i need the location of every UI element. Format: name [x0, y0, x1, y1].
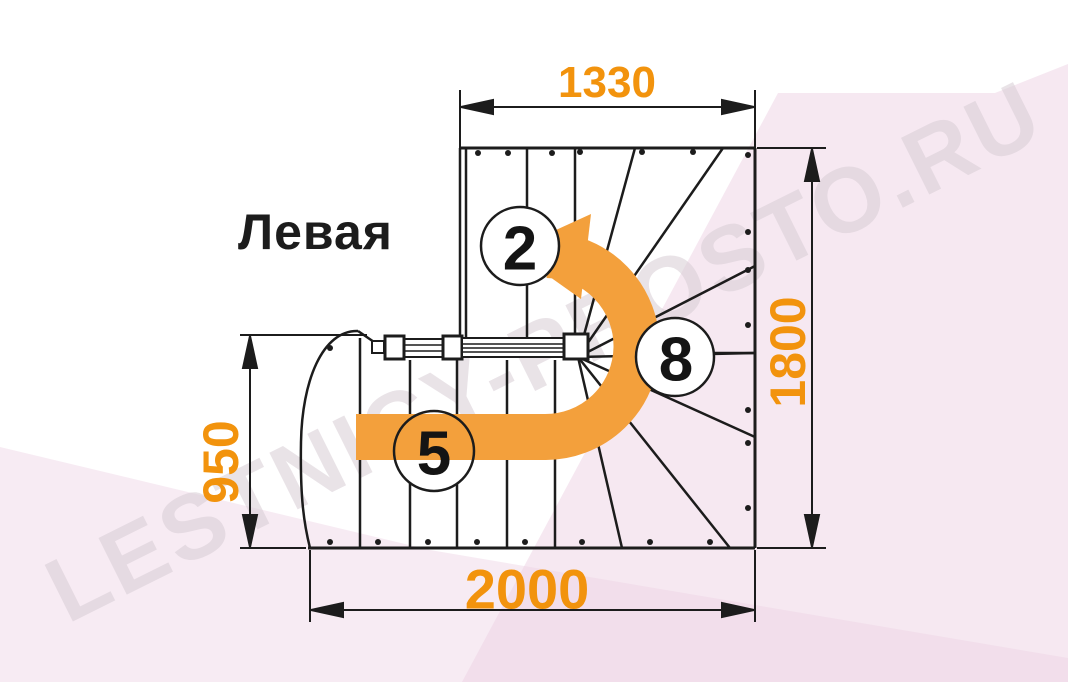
rail-board: [404, 339, 444, 357]
dim-arrowhead-down: [805, 515, 819, 547]
rail-end-nub: [372, 341, 384, 353]
dim-arrowhead-up: [805, 149, 819, 181]
dim-arrowhead-right: [722, 100, 754, 114]
step-number-2: 2: [503, 214, 537, 285]
handrail-assembly: [372, 334, 588, 359]
dim-arrowhead-right: [722, 603, 754, 617]
dim-arrowhead-left: [461, 100, 493, 114]
dim-arrowhead-up: [243, 336, 257, 368]
step-number-8: 8: [659, 325, 693, 396]
corner-newel-post: [564, 334, 588, 359]
step-number-5: 5: [417, 419, 451, 490]
stair-plan-drawing: LESTNICY-PROSTO.RU: [0, 0, 1068, 682]
baluster-post: [385, 336, 404, 359]
variant-title: Левая: [238, 203, 393, 261]
curved-stringer-left-edge: [301, 331, 358, 548]
dim-arrowhead-down: [243, 515, 257, 547]
dim-arrowhead-left: [311, 603, 343, 617]
dimension-bottom-value: 2000: [465, 557, 590, 622]
dimension-top-value: 1330: [558, 58, 656, 108]
dimension-right-value: 1800: [759, 296, 817, 407]
dimension-left-value: 950: [192, 420, 250, 503]
baluster-post: [443, 336, 462, 359]
